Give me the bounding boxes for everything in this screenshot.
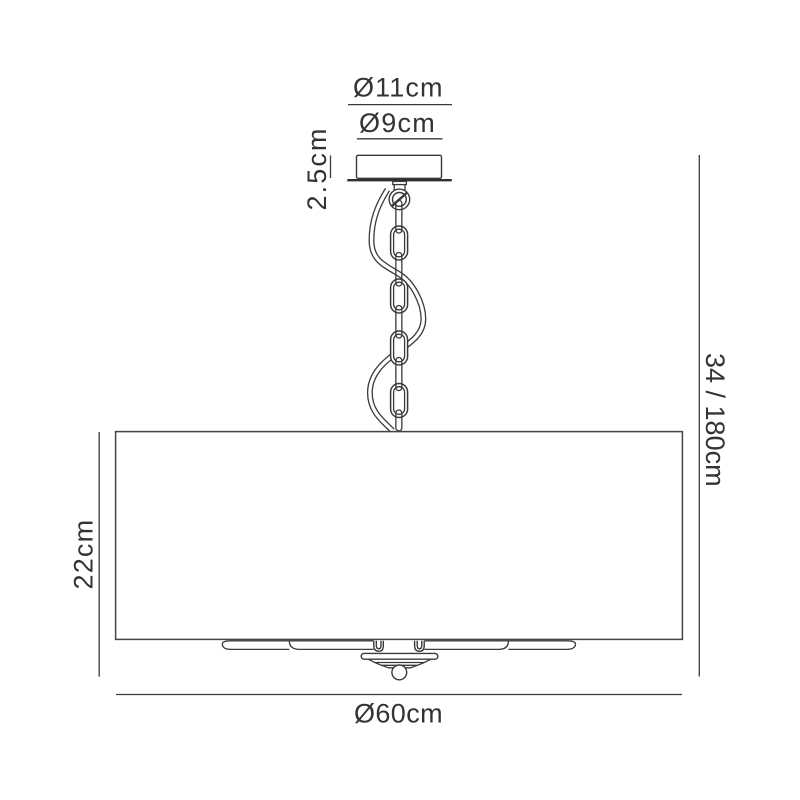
svg-text:2.5cm: 2.5cm bbox=[302, 126, 332, 210]
svg-text:22cm: 22cm bbox=[69, 519, 99, 590]
svg-text:34 / 180cm: 34 / 180cm bbox=[700, 353, 730, 487]
svg-text:Ø60cm: Ø60cm bbox=[354, 699, 443, 729]
svg-text:Ø9cm: Ø9cm bbox=[359, 108, 436, 138]
svg-text:Ø11cm: Ø11cm bbox=[353, 73, 444, 103]
